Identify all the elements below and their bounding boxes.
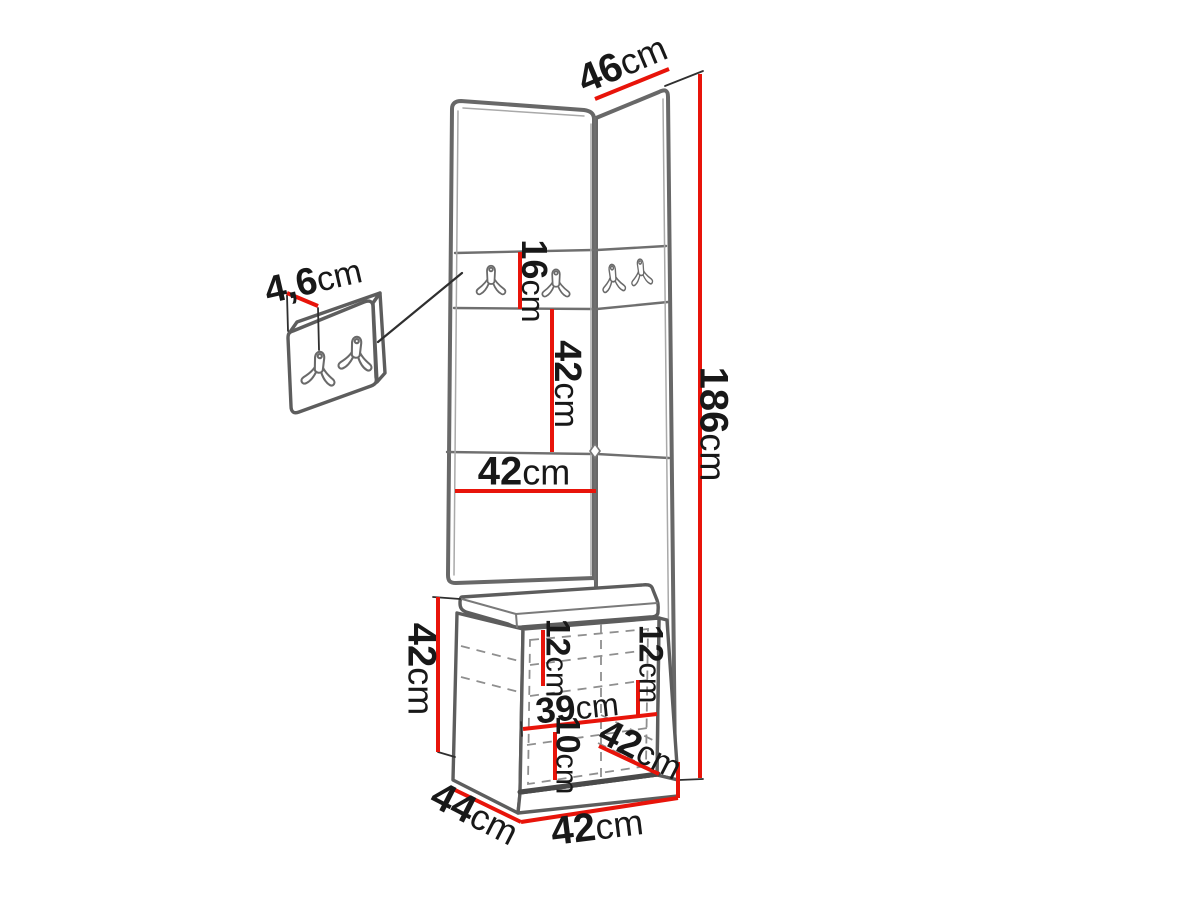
dim-panel-width-label: 42cm bbox=[478, 450, 571, 494]
dim-hook-panel-height-label: 16cm bbox=[514, 239, 555, 322]
dim-inner-right-label: 12cm bbox=[631, 625, 669, 704]
dim-mid-panel-height-label: 42cm bbox=[546, 340, 588, 428]
dim-inner-bottom-label: 10cm bbox=[548, 716, 586, 795]
detail-panel bbox=[287, 293, 385, 413]
dim-bench-height-label: 42cm bbox=[399, 623, 443, 716]
dim-inner-top-label: 12cm bbox=[538, 619, 576, 698]
dim-total-height-label: 186cm bbox=[691, 367, 735, 482]
diagram-canvas: 46cm 186cm 16cm 42cm 42cm 4,6cm 42cm 12c… bbox=[0, 0, 1200, 899]
